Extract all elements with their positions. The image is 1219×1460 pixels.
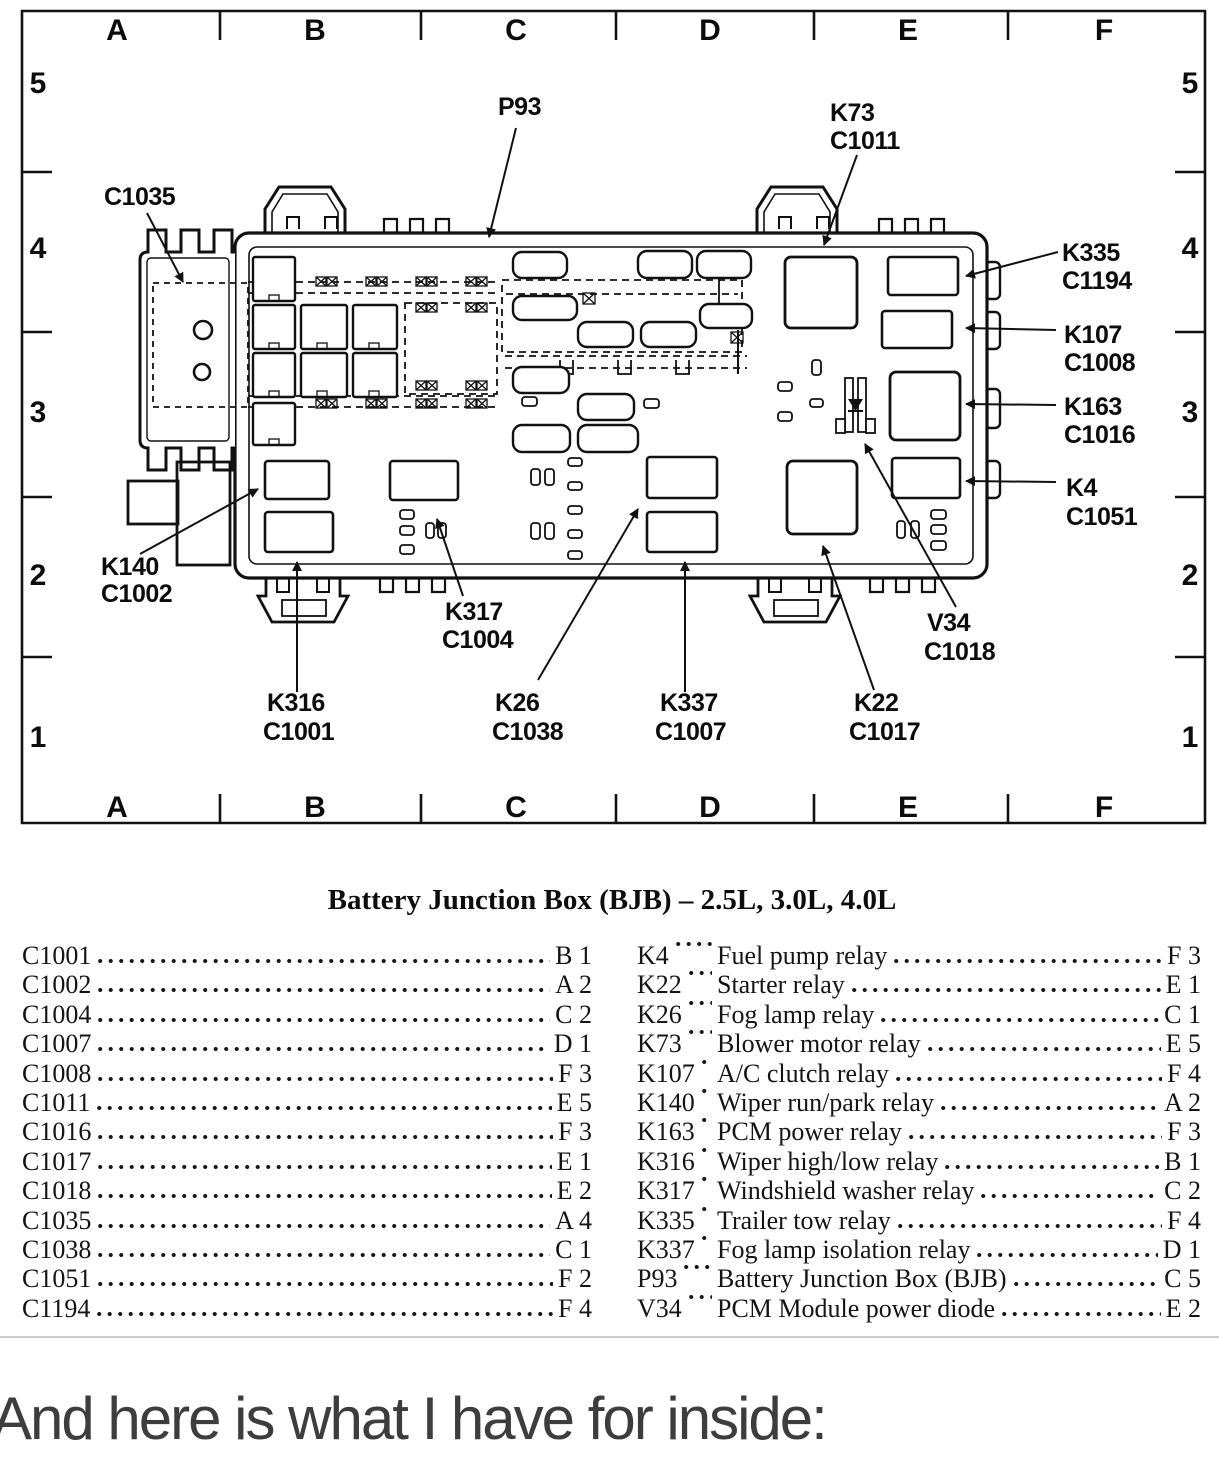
component-id: K4 [637, 941, 669, 970]
connector-id: C1008 [22, 1059, 91, 1088]
callout-text: C1018 [924, 638, 996, 666]
table-row: K107A/C clutch relayF 4 [637, 1059, 1201, 1088]
component-name: PCM Module power diode [717, 1294, 995, 1323]
table-row: K140Wiper run/park relayA 2 [637, 1088, 1201, 1117]
component-name: Starter relay [717, 970, 845, 999]
callout-p93: P93 [489, 93, 541, 237]
callout-text: C1001 [263, 718, 335, 746]
callout-text: K337 [660, 689, 718, 717]
component-key-cell: K335 [637, 1206, 717, 1235]
dot-leader [98, 1046, 548, 1052]
dot-leader [702, 1147, 712, 1153]
dot-leader [684, 1264, 712, 1270]
connector-id: C1011 [22, 1088, 90, 1117]
grid-ref: F 4 [1167, 1206, 1201, 1235]
dot-leader [981, 1193, 1159, 1199]
grid-ref: E 1 [1166, 970, 1201, 999]
grid-col-label: C [505, 14, 527, 47]
page: A B C D E F A B C D E F 5 4 3 2 1 5 4 3 … [0, 0, 1219, 1460]
component-name: PCM power relay [717, 1117, 902, 1146]
table-row: C1194F 4 [22, 1294, 592, 1323]
table-row: K163PCM power relayF 3 [637, 1117, 1201, 1146]
grid-ref: C 2 [555, 1000, 592, 1029]
dot-leader [896, 1076, 1162, 1082]
table-row: C1007D 1 [22, 1029, 592, 1058]
connector-id: C1016 [22, 1117, 91, 1146]
component-name: Wiper high/low relay [717, 1147, 938, 1176]
table-row: C1016F 3 [22, 1117, 592, 1146]
grid-col-label: D [699, 14, 721, 47]
grid-ref: E 2 [1166, 1294, 1201, 1323]
dot-leader [894, 958, 1162, 964]
component-id: K316 [637, 1147, 695, 1176]
connector-id: C1001 [22, 941, 91, 970]
dot-leader [702, 1117, 712, 1123]
component-key-cell: K26 [637, 1000, 717, 1029]
grid-row-label: 5 [30, 67, 47, 100]
dot-leader [98, 958, 550, 964]
table-row: K73Blower motor relayE 5 [637, 1029, 1201, 1058]
relay-k107 [882, 311, 952, 348]
grid-ref: D 1 [1163, 1235, 1201, 1264]
callout-text: K163 [1064, 393, 1122, 421]
callout-text: C1016 [1064, 421, 1135, 449]
callout-text: C1038 [492, 718, 564, 746]
grid-row-label: 3 [30, 396, 47, 429]
grid-row-label: 5 [1182, 67, 1199, 100]
component-name: Windshield washer relay [717, 1176, 974, 1205]
grid-col-label: A [106, 14, 128, 47]
connector-id: C1018 [22, 1176, 91, 1205]
callout-text: C1011 [830, 127, 900, 155]
grid-ref: B 1 [1164, 1147, 1201, 1176]
dot-leader [1014, 1281, 1160, 1287]
callout-text: K317 [445, 598, 503, 626]
relay-k4 [892, 458, 960, 498]
table-row: C1008F 3 [22, 1059, 592, 1088]
callout-text: K335 [1062, 239, 1120, 267]
component-key-cell: K337 [637, 1235, 717, 1264]
component-key-cell: K22 [637, 970, 717, 999]
connector-id: C1051 [22, 1264, 91, 1293]
relay-k140 [265, 461, 329, 499]
table-row: C1001B 1 [22, 941, 592, 970]
relay-k22 [787, 461, 857, 534]
dot-leader [98, 1281, 553, 1287]
component-key-cell: K317 [637, 1176, 717, 1205]
component-key-cell: K140 [637, 1088, 717, 1117]
grid-col-label: F [1095, 791, 1113, 824]
grid-ref: F 3 [1167, 941, 1201, 970]
connector-id: C1194 [22, 1294, 90, 1323]
component-key-cell: P93 [637, 1264, 717, 1293]
table-row: C1018E 2 [22, 1176, 592, 1205]
component-id: K317 [637, 1176, 695, 1205]
component-name: Fuel pump relay [717, 941, 887, 970]
grid-row-label: 2 [30, 559, 47, 592]
component-key-cell: K316 [637, 1147, 717, 1176]
component-id: K26 [637, 1000, 682, 1029]
component-key-cell: V34 [637, 1294, 717, 1323]
dot-leader [689, 1294, 712, 1300]
component-id: K335 [637, 1206, 695, 1235]
component-key-cell: K4 [637, 941, 717, 970]
grid-ref: F 3 [558, 1117, 592, 1146]
grid-row-label: 4 [30, 232, 47, 265]
dot-leader [977, 1252, 1157, 1258]
dot-leader [702, 1088, 712, 1094]
dot-leader [97, 1105, 551, 1111]
grid-row-label: 1 [30, 721, 47, 754]
grid-ref: E 5 [557, 1088, 592, 1117]
table-row: C1017E 1 [22, 1147, 592, 1176]
dot-leader [98, 1017, 550, 1023]
component-key-cell: K163 [637, 1117, 717, 1146]
grid-ref: E 2 [557, 1176, 592, 1205]
dot-leader [702, 1206, 712, 1212]
table-row: C1004C 2 [22, 1000, 592, 1029]
component-id: P93 [637, 1264, 677, 1293]
grid-ref: E 1 [557, 1147, 592, 1176]
table-row: C1051F 2 [22, 1264, 592, 1293]
callout-text: K140 [101, 553, 159, 581]
footer-text: And here is what I have for inside: [0, 1384, 826, 1453]
dot-leader [689, 1029, 712, 1035]
connector-location-list: C1001B 1C1002A 2C1004C 2C1007D 1C1008F 3… [22, 941, 592, 1323]
component-id: K140 [637, 1088, 695, 1117]
dot-leader [98, 1164, 551, 1170]
relay-k337 [647, 512, 717, 552]
dot-leader [689, 1000, 712, 1006]
dot-leader [702, 1176, 712, 1182]
component-name: Fog lamp relay [717, 1000, 874, 1029]
callout-k337: K337 C1007 [655, 562, 726, 746]
callout-k335: K335 C1194 [966, 239, 1132, 295]
component-id: K163 [637, 1117, 695, 1146]
relay-k73 [785, 257, 857, 328]
connector-id: C1038 [22, 1235, 91, 1264]
callout-k316: K316 C1001 [263, 562, 335, 746]
table-row: K335Trailer tow relayF 4 [637, 1206, 1201, 1235]
callout-k73: K73 C1011 [824, 99, 900, 245]
grid-col-label: F [1095, 14, 1113, 47]
table-row: K316Wiper high/low relayB 1 [637, 1147, 1201, 1176]
grid-ref: E 5 [1166, 1029, 1201, 1058]
dot-leader [689, 970, 712, 976]
component-key-cell: K107 [637, 1059, 717, 1088]
dot-leader [702, 1059, 712, 1065]
callout-text: C1008 [1064, 349, 1136, 377]
table-row: V34PCM Module power diodeE 2 [637, 1294, 1201, 1323]
connector-id: C1007 [22, 1029, 91, 1058]
dot-leader [928, 1046, 1161, 1052]
connector-id: C1002 [22, 970, 91, 999]
dot-leader [702, 1235, 712, 1241]
grid-ref: F 4 [1167, 1059, 1201, 1088]
dot-leader [98, 1252, 550, 1258]
table-row: C1038C 1 [22, 1235, 592, 1264]
table-row: C1035A 4 [22, 1206, 592, 1235]
grid-ref: A 2 [555, 970, 592, 999]
connector-id: C1004 [22, 1000, 91, 1029]
callout-text: K73 [830, 99, 874, 127]
grid-ref: C 1 [555, 1235, 592, 1264]
dot-leader [945, 1164, 1159, 1170]
callout-text: C1051 [1066, 503, 1138, 531]
component-id: V34 [637, 1294, 682, 1323]
grid-row-label: 3 [1182, 396, 1199, 429]
component-id: K107 [637, 1059, 695, 1088]
dot-leader [852, 987, 1161, 993]
callout-text: K316 [267, 689, 325, 717]
grid-col-label: B [304, 791, 326, 824]
dot-leader [909, 1134, 1162, 1140]
callout-text: V34 [927, 609, 971, 637]
grid-ref: A 2 [1164, 1088, 1201, 1117]
callout-text: C1007 [655, 718, 726, 746]
callout-text: K22 [854, 689, 898, 717]
component-id: K73 [637, 1029, 682, 1058]
table-row: K317Windshield washer relayC 2 [637, 1176, 1201, 1205]
fusebox-drawing [128, 187, 1000, 622]
component-id: K337 [637, 1235, 695, 1264]
grid-col-label: D [699, 791, 721, 824]
bjb-diagram: A B C D E F A B C D E F 5 4 3 2 1 5 4 3 … [0, 0, 1219, 838]
grid-ref: A 4 [555, 1206, 592, 1235]
connector-id: C1017 [22, 1147, 91, 1176]
grid-col-label: A [106, 791, 128, 824]
callout-text: K107 [1064, 321, 1122, 349]
table-row: K26Fog lamp relayC 1 [637, 1000, 1201, 1029]
component-location-list: K4Fuel pump relayF 3K22Starter relayE 1K… [637, 941, 1201, 1323]
callout-text: K4 [1066, 474, 1098, 502]
grid-row-label: 2 [1182, 559, 1199, 592]
table-row: P93Battery Junction Box (BJB)C 5 [637, 1264, 1201, 1293]
dot-leader [676, 941, 712, 947]
grid-col-label: E [898, 791, 918, 824]
callout-k4: K4 C1051 [966, 474, 1138, 531]
dot-leader [1002, 1311, 1161, 1317]
grid-col-label: B [304, 14, 326, 47]
connector-id: C1035 [22, 1206, 91, 1235]
grid-ref: C 1 [1164, 1000, 1201, 1029]
grid-ref: F 3 [1167, 1117, 1201, 1146]
dot-leader [98, 987, 550, 993]
callout-text: C1035 [104, 183, 176, 211]
component-name: Battery Junction Box (BJB) [717, 1264, 1007, 1293]
callout-text: K26 [495, 689, 539, 717]
table-row: C1002A 2 [22, 970, 592, 999]
callout-k163: K163 C1016 [966, 393, 1135, 449]
component-name: Wiper run/park relay [717, 1088, 934, 1117]
grid-col-label: C [505, 791, 527, 824]
dot-leader [881, 1017, 1159, 1023]
grid-ref: B 1 [555, 941, 592, 970]
table-title: Battery Junction Box (BJB) – 2.5L, 3.0L,… [22, 886, 1202, 915]
component-id: K22 [637, 970, 682, 999]
grid-row-label: 1 [1182, 721, 1199, 754]
separator-line [0, 1336, 1219, 1338]
relay-k317 [390, 461, 458, 500]
table-row: K337Fog lamp isolation relayD 1 [637, 1235, 1201, 1264]
relay-k163 [890, 372, 960, 440]
dot-leader [98, 1193, 551, 1199]
dot-leader [941, 1105, 1159, 1111]
grid-ref: F 4 [558, 1294, 592, 1323]
dot-leader [898, 1223, 1162, 1229]
component-name: Trailer tow relay [717, 1206, 891, 1235]
relay-k26 [647, 457, 717, 498]
relay-k335 [888, 257, 958, 295]
component-name: Fog lamp isolation relay [717, 1235, 970, 1264]
callout-text: C1017 [849, 718, 920, 746]
grid-col-label: E [898, 14, 918, 47]
component-key-cell: K73 [637, 1029, 717, 1058]
dot-leader [98, 1223, 550, 1229]
relay-k316 [265, 512, 333, 552]
table-row: C1011E 5 [22, 1088, 592, 1117]
callout-text: C1002 [101, 580, 172, 608]
callout-text: C1194 [1062, 267, 1132, 295]
component-name: Blower motor relay [717, 1029, 921, 1058]
grid-row-label: 4 [1182, 232, 1199, 265]
table-row: K4Fuel pump relayF 3 [637, 941, 1201, 970]
grid-ref: C 2 [1164, 1176, 1201, 1205]
grid-ref: F 3 [558, 1059, 592, 1088]
dot-leader [98, 1134, 553, 1140]
callout-text: C1004 [442, 626, 514, 654]
grid-ref: D 1 [554, 1029, 592, 1058]
component-name: A/C clutch relay [717, 1059, 889, 1088]
dot-leader [98, 1076, 553, 1082]
dot-leader [97, 1311, 553, 1317]
grid-ref: C 5 [1164, 1264, 1201, 1293]
grid-ref: F 2 [558, 1264, 592, 1293]
callout-text: P93 [498, 93, 541, 121]
table-row: K22Starter relayE 1 [637, 970, 1201, 999]
